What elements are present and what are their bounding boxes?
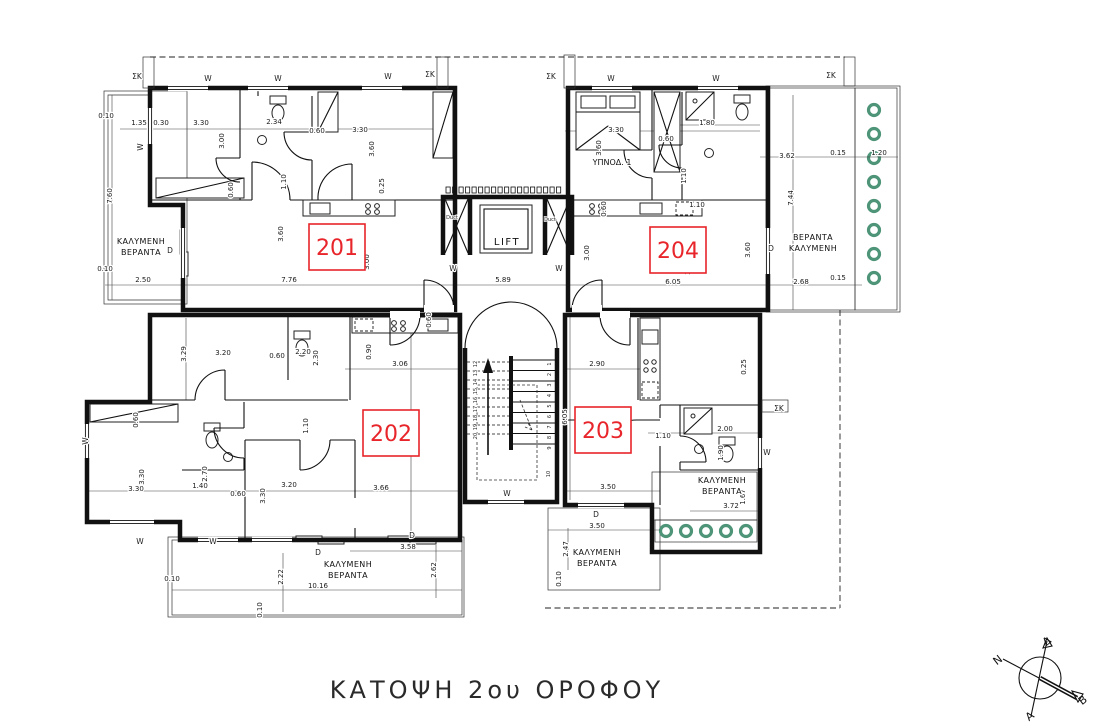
plant-icon [741, 526, 752, 537]
shower-icon [686, 92, 714, 120]
stair-number: 18 [473, 415, 479, 421]
dimension-label: 1.10 [655, 432, 671, 440]
plant-icon [869, 105, 880, 116]
dimension-label: 2.34 [266, 118, 282, 126]
kitchen-counter [572, 200, 702, 216]
stair-number: 8 [547, 436, 553, 439]
plant-icon [869, 129, 880, 140]
dimension-label: 3.72 [723, 502, 739, 510]
dimension-label: 3.30 [193, 119, 209, 127]
dimension-label: 3.62 [779, 152, 795, 160]
dimension-label: 2.30 [312, 350, 320, 366]
plant-icon [869, 177, 880, 188]
dimension-label: 2.68 [793, 278, 809, 286]
lift-label: LIFT [494, 237, 520, 248]
marker-W: W [555, 264, 563, 273]
dimension-label: 0.10 [97, 265, 113, 273]
stair-number: 19 [473, 424, 479, 430]
dimension-label: 3.50 [600, 483, 616, 491]
dimension-label: 3.00 [583, 245, 591, 261]
dimension-label: 2.90 [589, 360, 605, 368]
apartment-203-number: 203 [582, 419, 624, 444]
dimension-label: 0.60 [425, 312, 433, 328]
dimension-label: 2.20 [295, 348, 311, 356]
veranda-label: ΒΕΡΑΝΤΑ [121, 248, 161, 257]
dimension-label: 7.44 [787, 190, 795, 206]
marker-W: W [763, 448, 771, 457]
door-opening [424, 305, 454, 312]
marker-ΣΚ: ΣΚ [132, 72, 143, 81]
compass-letter-Ν: Ν [991, 653, 1005, 668]
compass: ΔΝΒΑ [991, 634, 1090, 724]
marker-W: W [136, 143, 145, 151]
kitchen-counter [303, 200, 395, 216]
stair-number: 15 [473, 388, 479, 394]
dimension-label: 3.60 [595, 140, 603, 156]
sink-icon [258, 136, 267, 145]
dimension-label: 3.29 [180, 346, 188, 362]
dimension-label: 3.20 [215, 349, 231, 357]
veranda-label: ΒΕΡΑΝΤΑ [328, 571, 368, 580]
louvre-row [446, 187, 561, 193]
dimension-lines [85, 95, 898, 612]
dimension-label: 1.20 [871, 149, 887, 157]
marker-ΣΚ: ΣΚ [774, 404, 785, 413]
veranda-label: ΚΑΛΥΜΕΝΗ [573, 548, 621, 557]
plant-icon [701, 526, 712, 537]
door-opening [572, 305, 602, 312]
dimension-label: 1.40 [192, 482, 208, 490]
marker-D: D [315, 548, 321, 557]
dimension-label: 3.60 [368, 141, 376, 157]
marker-D: D [409, 531, 415, 540]
marker-W: W [204, 74, 212, 83]
shower-icon [684, 408, 712, 434]
window [578, 502, 624, 508]
plant-icon [869, 273, 880, 284]
dimension-label: 2.62 [430, 562, 438, 578]
marker-D: D [167, 246, 173, 255]
dimension-label: 3.50 [589, 522, 605, 530]
dimension-label: 0.60 [309, 127, 325, 135]
plant-icon [869, 201, 880, 212]
dimension-label: 7.76 [281, 276, 297, 284]
window [362, 85, 402, 91]
dimension-label: 3.06 [392, 360, 408, 368]
boundary-dashed-lines [150, 57, 845, 608]
veranda-label: ΚΑΛΥΜΕΝΗ [324, 560, 372, 569]
dimension-label: 0.10 [164, 575, 180, 583]
marker-ΣΚ: ΣΚ [826, 71, 837, 80]
apartment-202-number: 202 [370, 422, 412, 447]
dimension-label: 7.60 [106, 188, 114, 204]
dimension-label: 1.10 [302, 418, 310, 434]
dimension-label: 0.10 [555, 571, 563, 587]
dimension-label: 0.60 [269, 352, 285, 360]
dimension-label: 0.60 [600, 201, 608, 217]
duct-label: Duct [544, 217, 556, 223]
dimension-label: 1.10 [689, 201, 705, 209]
dimension-label: 3.60 [277, 226, 285, 242]
plant-icon [869, 249, 880, 260]
marker-W: W [449, 264, 457, 273]
dimension-label: 3.30 [128, 485, 144, 493]
stair-guide [477, 385, 537, 480]
toilet-icon [734, 95, 750, 120]
dimension-label: 2.70 [201, 466, 209, 482]
stair-number: 2 [547, 373, 553, 376]
apartment-201-label: 201 [309, 224, 365, 270]
kitchen-counter [640, 318, 660, 400]
drawing-title: ΚΑΤΟΨΗ 2ου ΟΡΟΦΟΥ [330, 676, 664, 704]
plant-icon [721, 526, 732, 537]
veranda-label: ΚΑΛΥΜΕΝΗ [698, 476, 746, 485]
veranda-label: ΒΕΡΑΝΤΑ [793, 233, 833, 242]
dimension-label: 3.60 [744, 242, 752, 258]
window [168, 85, 208, 91]
stair-number: 5 [547, 404, 553, 407]
marker-W: W [136, 537, 144, 546]
dimension-label: 1.35 [131, 119, 147, 127]
stair-number: 3 [547, 383, 553, 386]
dimension-label: 0.90 [365, 344, 373, 360]
planter-right [855, 88, 897, 310]
stair-number: 14 [473, 379, 479, 385]
marker-W: W [209, 537, 217, 546]
marker-W: W [503, 489, 511, 498]
veranda-label: ΚΑΛΥΜΕΝΗ [117, 237, 165, 246]
dimension-label: 1.80 [699, 119, 715, 127]
marker-W: W [274, 74, 282, 83]
dimension-label: 0.60 [230, 490, 246, 498]
sink-icon [705, 149, 714, 158]
dimension-label: 0.60 [132, 412, 140, 428]
window [110, 519, 154, 525]
marker-ΣΚ: ΣΚ [425, 70, 436, 79]
dimension-label: 0.25 [378, 178, 386, 194]
dimension-label: 3.00 [218, 133, 226, 149]
apartment-203-label: 203 [575, 407, 631, 453]
floor-plan-canvas: 0.101.350.303.302.340.603.303.003.601.10… [0, 0, 1106, 728]
dimension-label: 1.10 [680, 168, 688, 184]
window [757, 438, 763, 468]
kitchen-counter [352, 317, 458, 333]
marker-ΣΚ: ΣΚ [546, 72, 557, 81]
dimension-label: 2.22 [277, 569, 285, 585]
veranda-label: ΒΕΡΑΝΤΑ [577, 559, 617, 568]
bedroom-label: ΥΠΝΟΔ. 1 [592, 158, 632, 167]
dimension-label: 6.05 [665, 278, 681, 286]
plant-icon [869, 225, 880, 236]
marker-W: W [712, 74, 720, 83]
window [180, 228, 186, 278]
window [698, 85, 738, 91]
dimension-label: 0.25 [740, 359, 748, 375]
dimension-label: 3.30 [259, 488, 267, 504]
stair-number: 10 [546, 471, 552, 477]
stair-number: 4 [547, 394, 553, 397]
marker-D: D [593, 510, 599, 519]
stair-arrowhead [483, 358, 493, 373]
stair-number: 6 [547, 415, 553, 418]
apartment-202-label: 202 [363, 410, 419, 456]
dimension-label: 3.58 [400, 543, 416, 551]
dimension-label: 3.66 [373, 484, 389, 492]
stair-number: 1 [547, 362, 553, 365]
floor-plan-drawing: 0.101.350.303.302.340.603.303.003.601.10… [0, 0, 1106, 728]
stair-number: 12 [473, 361, 479, 367]
dimension-label: 2.47 [562, 541, 570, 557]
stair-number: 16 [473, 397, 479, 403]
dimension-label: 2.00 [717, 425, 733, 433]
plant-icon [681, 526, 692, 537]
compass-letter-Α: Α [1023, 709, 1037, 724]
dimension-label: 0.15 [830, 274, 846, 282]
stair-divider [509, 356, 513, 450]
dimension-label: 0.30 [153, 119, 169, 127]
dimension-label: 3.30 [138, 469, 146, 485]
dimension-label: 0.60 [658, 135, 674, 143]
dimension-label: 2.50 [135, 276, 151, 284]
marker-W: W [607, 74, 615, 83]
veranda-label: ΒΕΡΑΝΤΑ [702, 487, 742, 496]
dimension-label: 1.10 [280, 174, 288, 190]
door-opening [600, 311, 630, 318]
dimension-label: 3.30 [352, 126, 368, 134]
apartment-204-number: 204 [657, 239, 699, 264]
bed-icon [576, 92, 640, 150]
stair-number: 20 [473, 433, 479, 439]
marker-W: W [384, 72, 392, 81]
marker-D: D [768, 244, 774, 253]
dimension-label: 6.05 [561, 409, 569, 425]
stair-number: 17 [473, 406, 479, 412]
window [592, 85, 632, 91]
apartment-201-number: 201 [316, 236, 358, 261]
dimension-label: 3.20 [281, 481, 297, 489]
compass-letter-Β: Β [1076, 693, 1090, 708]
window [248, 85, 288, 91]
duct-label: Duct [446, 215, 458, 221]
toilet-icon [204, 423, 220, 448]
sliding-door [180, 230, 436, 544]
dimension-label: 0.10 [256, 602, 264, 618]
dimension-label: 10.16 [308, 582, 329, 590]
dimension-label: 0.10 [98, 112, 114, 120]
veranda-label: ΚΑΛΥΜΕΝΗ [789, 244, 837, 253]
dimension-label: 0.15 [830, 149, 846, 157]
marker-W: W [81, 437, 90, 445]
window [198, 537, 238, 543]
window [488, 499, 524, 505]
stair-number: 13 [473, 370, 479, 376]
dimension-label: 5.89 [495, 276, 511, 284]
stair-number: 7 [547, 425, 553, 428]
door-opening [390, 311, 420, 318]
plant-icon [661, 526, 672, 537]
dimension-label: 0.60 [227, 182, 235, 198]
apartment-204-label: 204 [650, 227, 706, 273]
stair-number: 9 [547, 446, 553, 449]
window [252, 537, 292, 543]
dimension-label: 3.30 [608, 126, 624, 134]
dimension-label: 1.90 [717, 445, 725, 461]
